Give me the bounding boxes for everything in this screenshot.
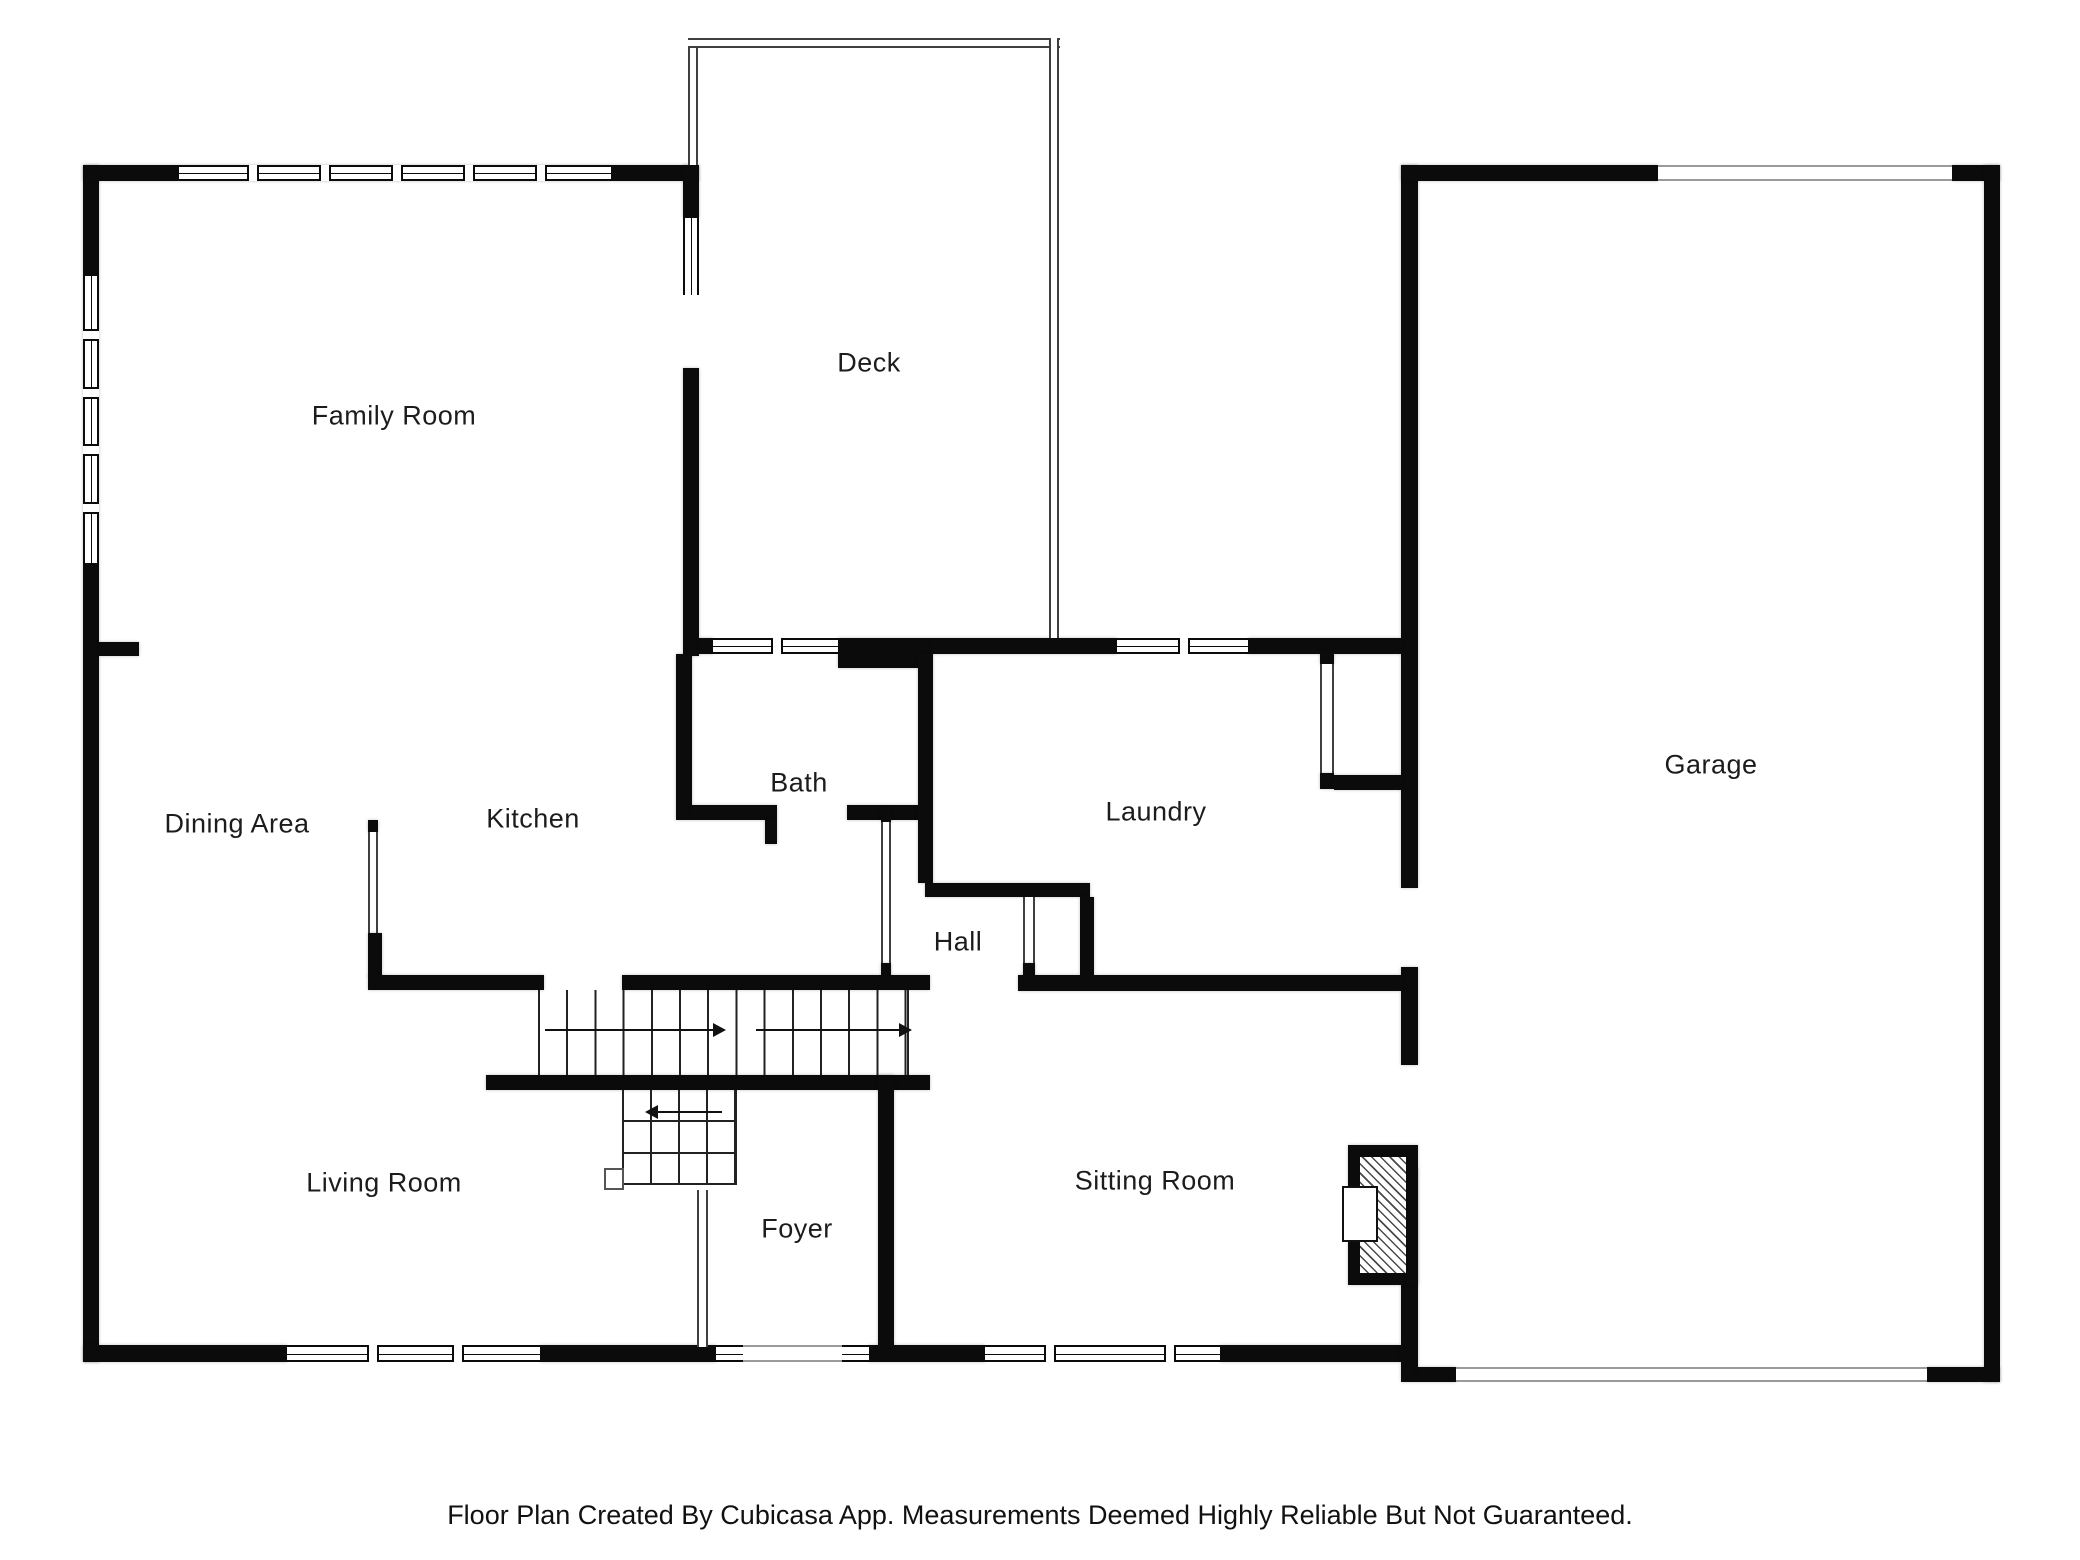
wall-bath-east	[918, 654, 933, 883]
front-door-opening	[743, 1345, 842, 1362]
garage-door-top-opening	[1658, 165, 1952, 181]
window-mullion	[391, 165, 403, 181]
wall-bath-north	[699, 638, 713, 654]
window-foyer-right	[842, 1345, 869, 1362]
room-label-bath: Bath	[770, 768, 828, 799]
exterior-wall-bottom	[540, 1345, 716, 1362]
garage-wall-bottom-right	[1927, 1367, 2000, 1382]
wall-kitchen-west-screen	[368, 832, 378, 933]
deck-wall-top	[688, 38, 1060, 48]
wall-foyer-east	[878, 1075, 894, 1347]
window-mullion	[83, 387, 99, 399]
garage-wall-left-mid	[1401, 967, 1418, 1065]
wall-stairs-divider	[486, 1075, 930, 1090]
stair-direction-arrow-left	[658, 1111, 722, 1113]
exterior-wall-bottom	[869, 1345, 985, 1362]
stair-landing-step	[604, 1168, 624, 1190]
room-label-garage: Garage	[1664, 750, 1757, 781]
window-mullion	[83, 444, 99, 456]
closet-door-cap	[1320, 652, 1334, 664]
floor-plan: Family Room Deck Dining Area Kitchen Bat…	[0, 0, 2080, 1560]
wall-laundry-north-left	[931, 638, 1117, 654]
window-mullion	[535, 165, 547, 181]
window-mullion	[1164, 1345, 1176, 1362]
closet-wall-corner	[1320, 773, 1334, 789]
hall-west-door-frame	[881, 822, 891, 963]
window-family-room-left	[83, 276, 99, 563]
deck-wall-right	[1049, 38, 1059, 638]
window-mullion	[1178, 638, 1190, 654]
window-mullion	[319, 165, 331, 181]
wall-laundry-west	[1080, 897, 1094, 975]
hall-door-cap	[881, 963, 891, 977]
exterior-wall-deck-side-upper	[683, 165, 699, 218]
window-mullion	[452, 1345, 464, 1362]
wall-foyer-west-screen	[697, 1190, 708, 1347]
wall-kitchen-south	[368, 975, 544, 990]
wall-kitchen-west-cap	[368, 820, 378, 832]
closet-wall-south	[1334, 775, 1401, 790]
window-bath	[713, 638, 838, 654]
window-foyer-left	[716, 1345, 743, 1362]
room-label-living-room: Living Room	[306, 1168, 462, 1199]
stair-direction-arrow-right	[756, 1029, 899, 1031]
hall-east-door-frame	[1023, 897, 1035, 963]
deck-wall-left	[688, 38, 698, 165]
closet-door-frame	[1320, 664, 1334, 773]
window-family-room-deck-side	[683, 218, 699, 295]
room-label-deck: Deck	[837, 348, 901, 379]
garage-wall-right	[1984, 165, 2000, 1382]
garage-wall-left-upper	[1401, 165, 1418, 888]
footer-disclaimer: Floor Plan Created By Cubicasa App. Meas…	[447, 1500, 1633, 1531]
room-label-dining-area: Dining Area	[164, 809, 309, 840]
window-sitting-room	[985, 1345, 1220, 1362]
window-mullion	[463, 165, 475, 181]
room-label-hall: Hall	[934, 927, 983, 958]
wall-sitting-north	[1018, 975, 1401, 991]
exterior-wall-bottom	[1220, 1345, 1401, 1362]
wall-bath-south-left	[692, 805, 777, 820]
room-label-family-room: Family Room	[312, 401, 477, 432]
garage-wall-bottom-left	[1418, 1367, 1456, 1382]
wall-dining-stub	[99, 642, 139, 656]
wall-hall-north	[925, 883, 1090, 897]
window-mullion	[83, 502, 99, 514]
window-mullion	[83, 329, 99, 341]
stair-direction-arrow-right	[545, 1029, 713, 1031]
window-mullion	[1044, 1345, 1056, 1362]
garage-door-bottom-opening	[1456, 1367, 1927, 1382]
room-label-sitting-room: Sitting Room	[1075, 1166, 1236, 1197]
window-living-room	[287, 1345, 540, 1362]
wall-stairs-header	[622, 975, 930, 990]
hall-door-cap	[881, 808, 891, 822]
staircase-lower-flight	[622, 1090, 737, 1185]
window-mullion	[247, 165, 259, 181]
fireplace-firebox	[1342, 1186, 1378, 1242]
exterior-wall-deck-side-lower	[683, 368, 699, 656]
window-laundry	[1117, 638, 1248, 654]
room-label-laundry: Laundry	[1105, 797, 1206, 828]
room-label-kitchen: Kitchen	[486, 804, 580, 835]
bath-door-jamb	[765, 820, 777, 844]
wall-bath-west	[676, 654, 692, 820]
exterior-wall-bottom	[83, 1345, 287, 1362]
window-mullion	[367, 1345, 379, 1362]
wall-kitchen-west	[368, 933, 382, 977]
room-label-foyer: Foyer	[761, 1214, 833, 1245]
window-mullion	[771, 638, 783, 654]
garage-wall-top-left	[1401, 165, 1658, 181]
window-family-room-top	[179, 165, 611, 181]
